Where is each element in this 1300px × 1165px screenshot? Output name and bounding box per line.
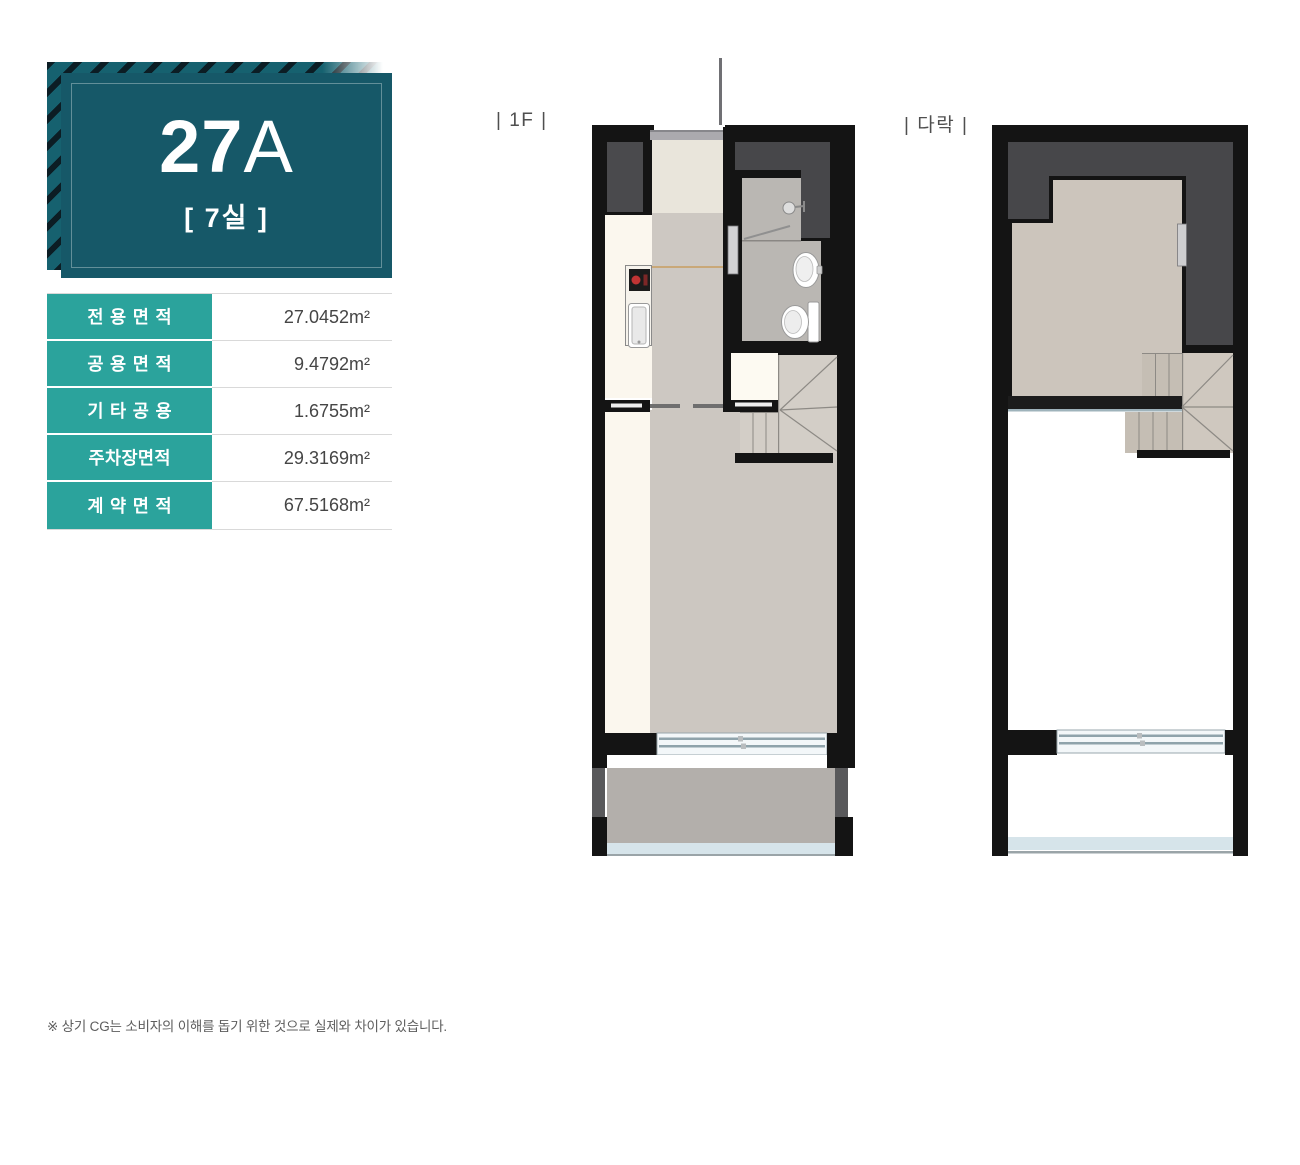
unit-badge: 27A [ 7실 ]: [47, 62, 392, 278]
unit-letter: A: [243, 105, 293, 188]
stove-icon: [629, 269, 650, 291]
disclaimer-note: ※ 상기 CG는 소비자의 이해를 돕기 위한 것으로 실제와 차이가 있습니다…: [47, 1015, 447, 1035]
corridor-floor: [652, 213, 723, 410]
row-label: 공용면적: [47, 341, 212, 388]
wardrobe-strip: [605, 412, 650, 733]
row-value: 29.3169m²: [212, 435, 392, 482]
counter-edge-line: [652, 266, 723, 268]
row-label: 전용면적: [47, 294, 212, 341]
unit-room-count: [ 7실 ]: [184, 196, 269, 235]
entry-closet: [592, 125, 654, 220]
badge-box: 27A [ 7실 ]: [61, 73, 392, 278]
row-value: 1.6755m²: [212, 388, 392, 435]
floor-plan-attic: [990, 120, 1250, 856]
row-value: 27.0452m²: [212, 294, 392, 341]
window-attic: [1008, 730, 1233, 755]
table-row: 기타공용 1.6755m²: [47, 388, 392, 435]
attic-wall-segment: [1186, 345, 1233, 353]
table-row: 전용면적 27.0452m²: [47, 294, 392, 341]
plan-label-1f: | 1F |: [496, 110, 548, 132]
row-value: 67.5168m²: [212, 482, 392, 529]
row-label: 주차장면적: [47, 435, 212, 482]
void-open-below: [1008, 837, 1233, 854]
attic-door: [1178, 224, 1187, 266]
plan-label-attic: | 다락 |: [904, 110, 968, 137]
toilet-icon: [782, 302, 820, 342]
row-value: 9.4792m²: [212, 341, 392, 388]
bathroom-door: [728, 226, 738, 274]
antenna-line: [719, 58, 722, 125]
area-table: 전용면적 27.0452m² 공용면적 9.4792m² 기타공용 1.6755…: [47, 293, 392, 530]
table-row: 공용면적 9.4792m²: [47, 341, 392, 388]
table-row: 계약면적 67.5168m²: [47, 482, 392, 529]
row-label: 계약면적: [47, 482, 212, 529]
table-row: 주차장면적 29.3169m²: [47, 435, 392, 482]
row-label: 기타공용: [47, 388, 212, 435]
bathroom: [723, 127, 837, 355]
entry-floor: [652, 140, 725, 213]
kitchen-sink-icon: [629, 304, 650, 348]
entry-threshold: [650, 130, 727, 140]
floor-plan-1f: [592, 120, 855, 856]
unit-number: 27: [159, 105, 243, 188]
kitchen-counter: [626, 266, 652, 348]
unit-type-title: 27A: [159, 110, 294, 184]
